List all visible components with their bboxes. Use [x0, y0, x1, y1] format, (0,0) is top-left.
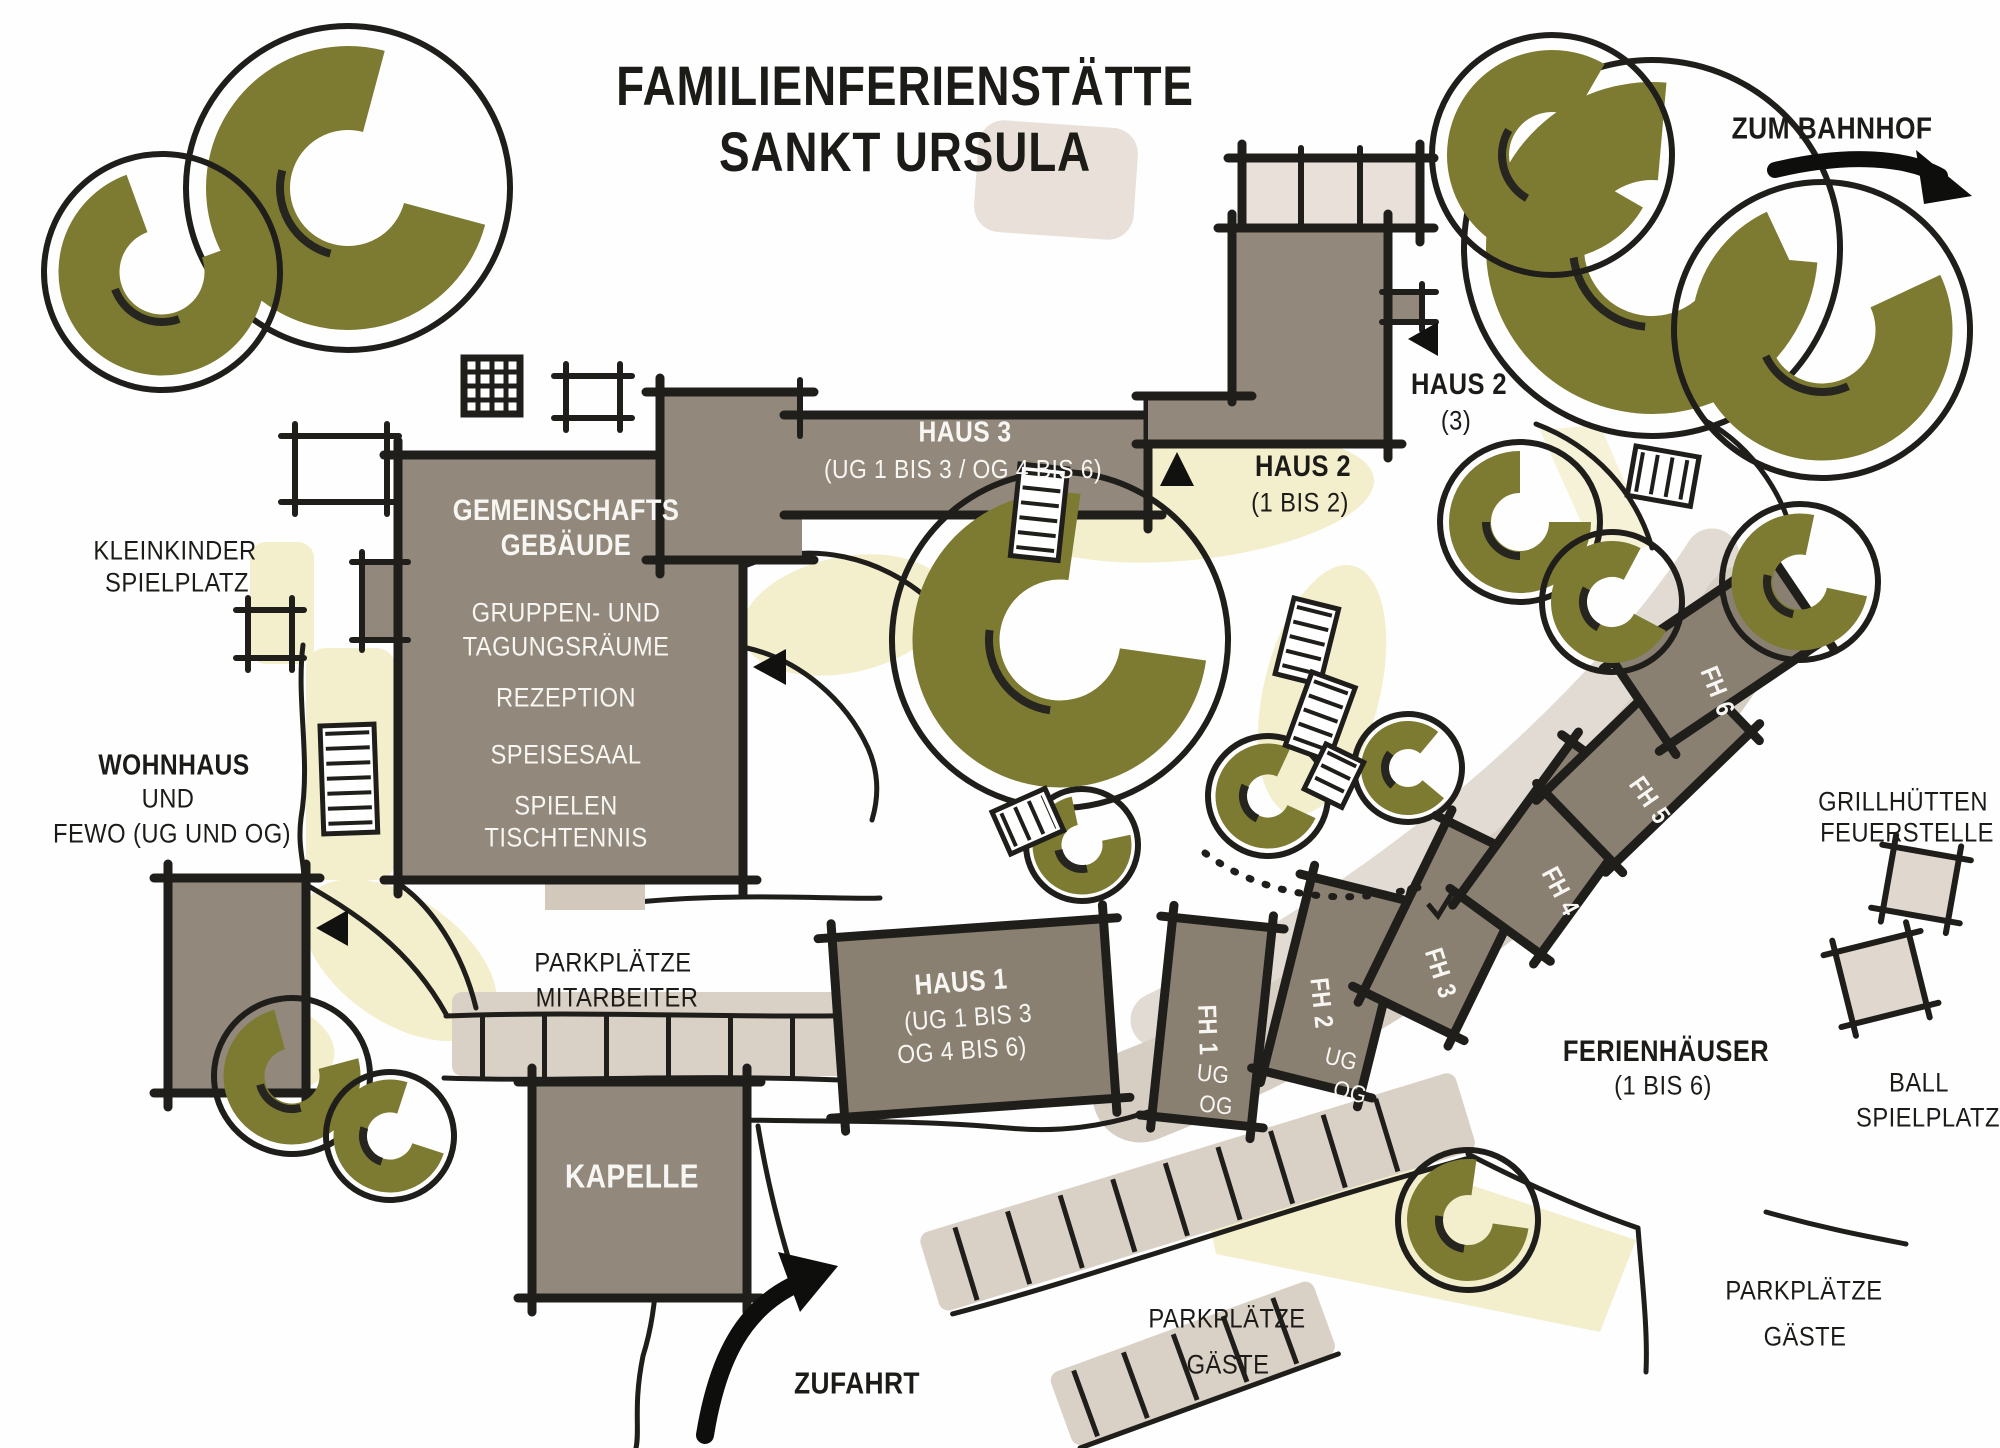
- fh1-og-label: OG: [1198, 1092, 1234, 1119]
- wohnhaus-label: WOHNHAUS: [98, 752, 249, 781]
- gemeinschaft-room-rezeption: REZEPTION: [496, 685, 636, 712]
- parkplaetze-mitarbeiter-line2: MITARBEITER: [536, 985, 699, 1012]
- gemeinschaft-room-gruppen: GRUPPEN- UND: [472, 600, 661, 627]
- ferienhaeuser-group-label: FERIENHÄUSER: [1563, 1037, 1769, 1067]
- haus2-upper-sub: (3): [1441, 408, 1471, 435]
- play-equipment-grid: [464, 358, 520, 414]
- haus2-lower-label: HAUS 2: [1255, 452, 1351, 482]
- gemeinschaft-room-spielen: SPIELEN: [514, 793, 617, 820]
- building-haus2: [1136, 144, 1436, 458]
- play-equipment-square: [554, 364, 632, 430]
- grill-hut-1: [1869, 833, 1973, 935]
- grillhuetten-label-line2: FEUERSTELLE: [1820, 820, 1994, 847]
- gemeinschaftsgebaeude-name2: GEBÄUDE: [501, 531, 631, 561]
- parkplaetze-mitarbeiter-line1: PARKPLÄTZE: [534, 950, 691, 977]
- zum-bahnhof-label: ZUM BAHNHOF: [1732, 113, 1933, 144]
- gemeinschaft-room-speisesaal: SPEISESAAL: [490, 742, 641, 769]
- fh1-label: FH1: [1194, 1004, 1222, 1056]
- ferienhaeuser-group-sub: (1 BIS 6): [1614, 1073, 1712, 1100]
- parkplaetze-gaeste-mitte-line2: GÄSTE: [1187, 1352, 1270, 1379]
- gemeinschaft-room-tagungsraeume: TAGUNGSRÄUME: [463, 634, 670, 661]
- wohnhaus-sub2: FEWO (UG UND OG): [53, 821, 291, 848]
- haus2-lower-sub: (1 BIS 2): [1251, 490, 1349, 517]
- gemeinschaft-room-tischtennis: TISCHTENNIS: [484, 825, 647, 852]
- wohnhaus-sub1: UND: [142, 786, 195, 813]
- site-map-drawing: [0, 0, 2000, 1448]
- fh2-label: FH2: [1306, 976, 1337, 1029]
- haus2-upper-label: HAUS 2: [1411, 370, 1507, 400]
- haus3-sub: (UG 1 BIS 3 / OG 4 BIS 6): [824, 456, 1102, 482]
- kleinkinder-spielplatz-label-line1: KLEINKINDER: [93, 538, 256, 565]
- ballspielplatz-label-line2: SPIELPLATZ: [1856, 1105, 2000, 1132]
- zum-bahnhof-arrow: [1775, 150, 1972, 204]
- parkplaetze-gaeste-rechts-line2: GÄSTE: [1764, 1324, 1847, 1351]
- grill-hut-2: [1821, 919, 1942, 1038]
- ballspielplatz-label-line1: BALL: [1889, 1070, 1949, 1097]
- parkplaetze-gaeste-mitte-line1: PARKPLÄTZE: [1148, 1306, 1305, 1333]
- haus3-label: HAUS 3: [919, 419, 1012, 448]
- map-title-line2: SANKT URSULA: [719, 124, 1091, 180]
- parkplaetze-gaeste-rechts-line1: PARKPLÄTZE: [1725, 1278, 1882, 1305]
- grillhuetten-label-line1: GRILLHÜTTEN: [1818, 789, 1988, 816]
- zufahrt-label: ZUFAHRT: [794, 1368, 920, 1399]
- map-title-line1: FAMILIENFERIENSTÄTTE: [616, 58, 1194, 114]
- haus1-label: HAUS 1: [914, 965, 1009, 1000]
- kapelle-label: KAPELLE: [565, 1160, 699, 1193]
- site-map: FAMILIENFERIENSTÄTTE SANKT URSULA ZUM BA…: [0, 0, 2000, 1448]
- gemeinschaftsgebaeude-name1: GEMEINSCHAFTS: [453, 496, 680, 526]
- fh1-ug-label: UG: [1196, 1061, 1231, 1088]
- kleinkinder-spielplatz-label-line2: SPIELPLATZ: [105, 570, 249, 597]
